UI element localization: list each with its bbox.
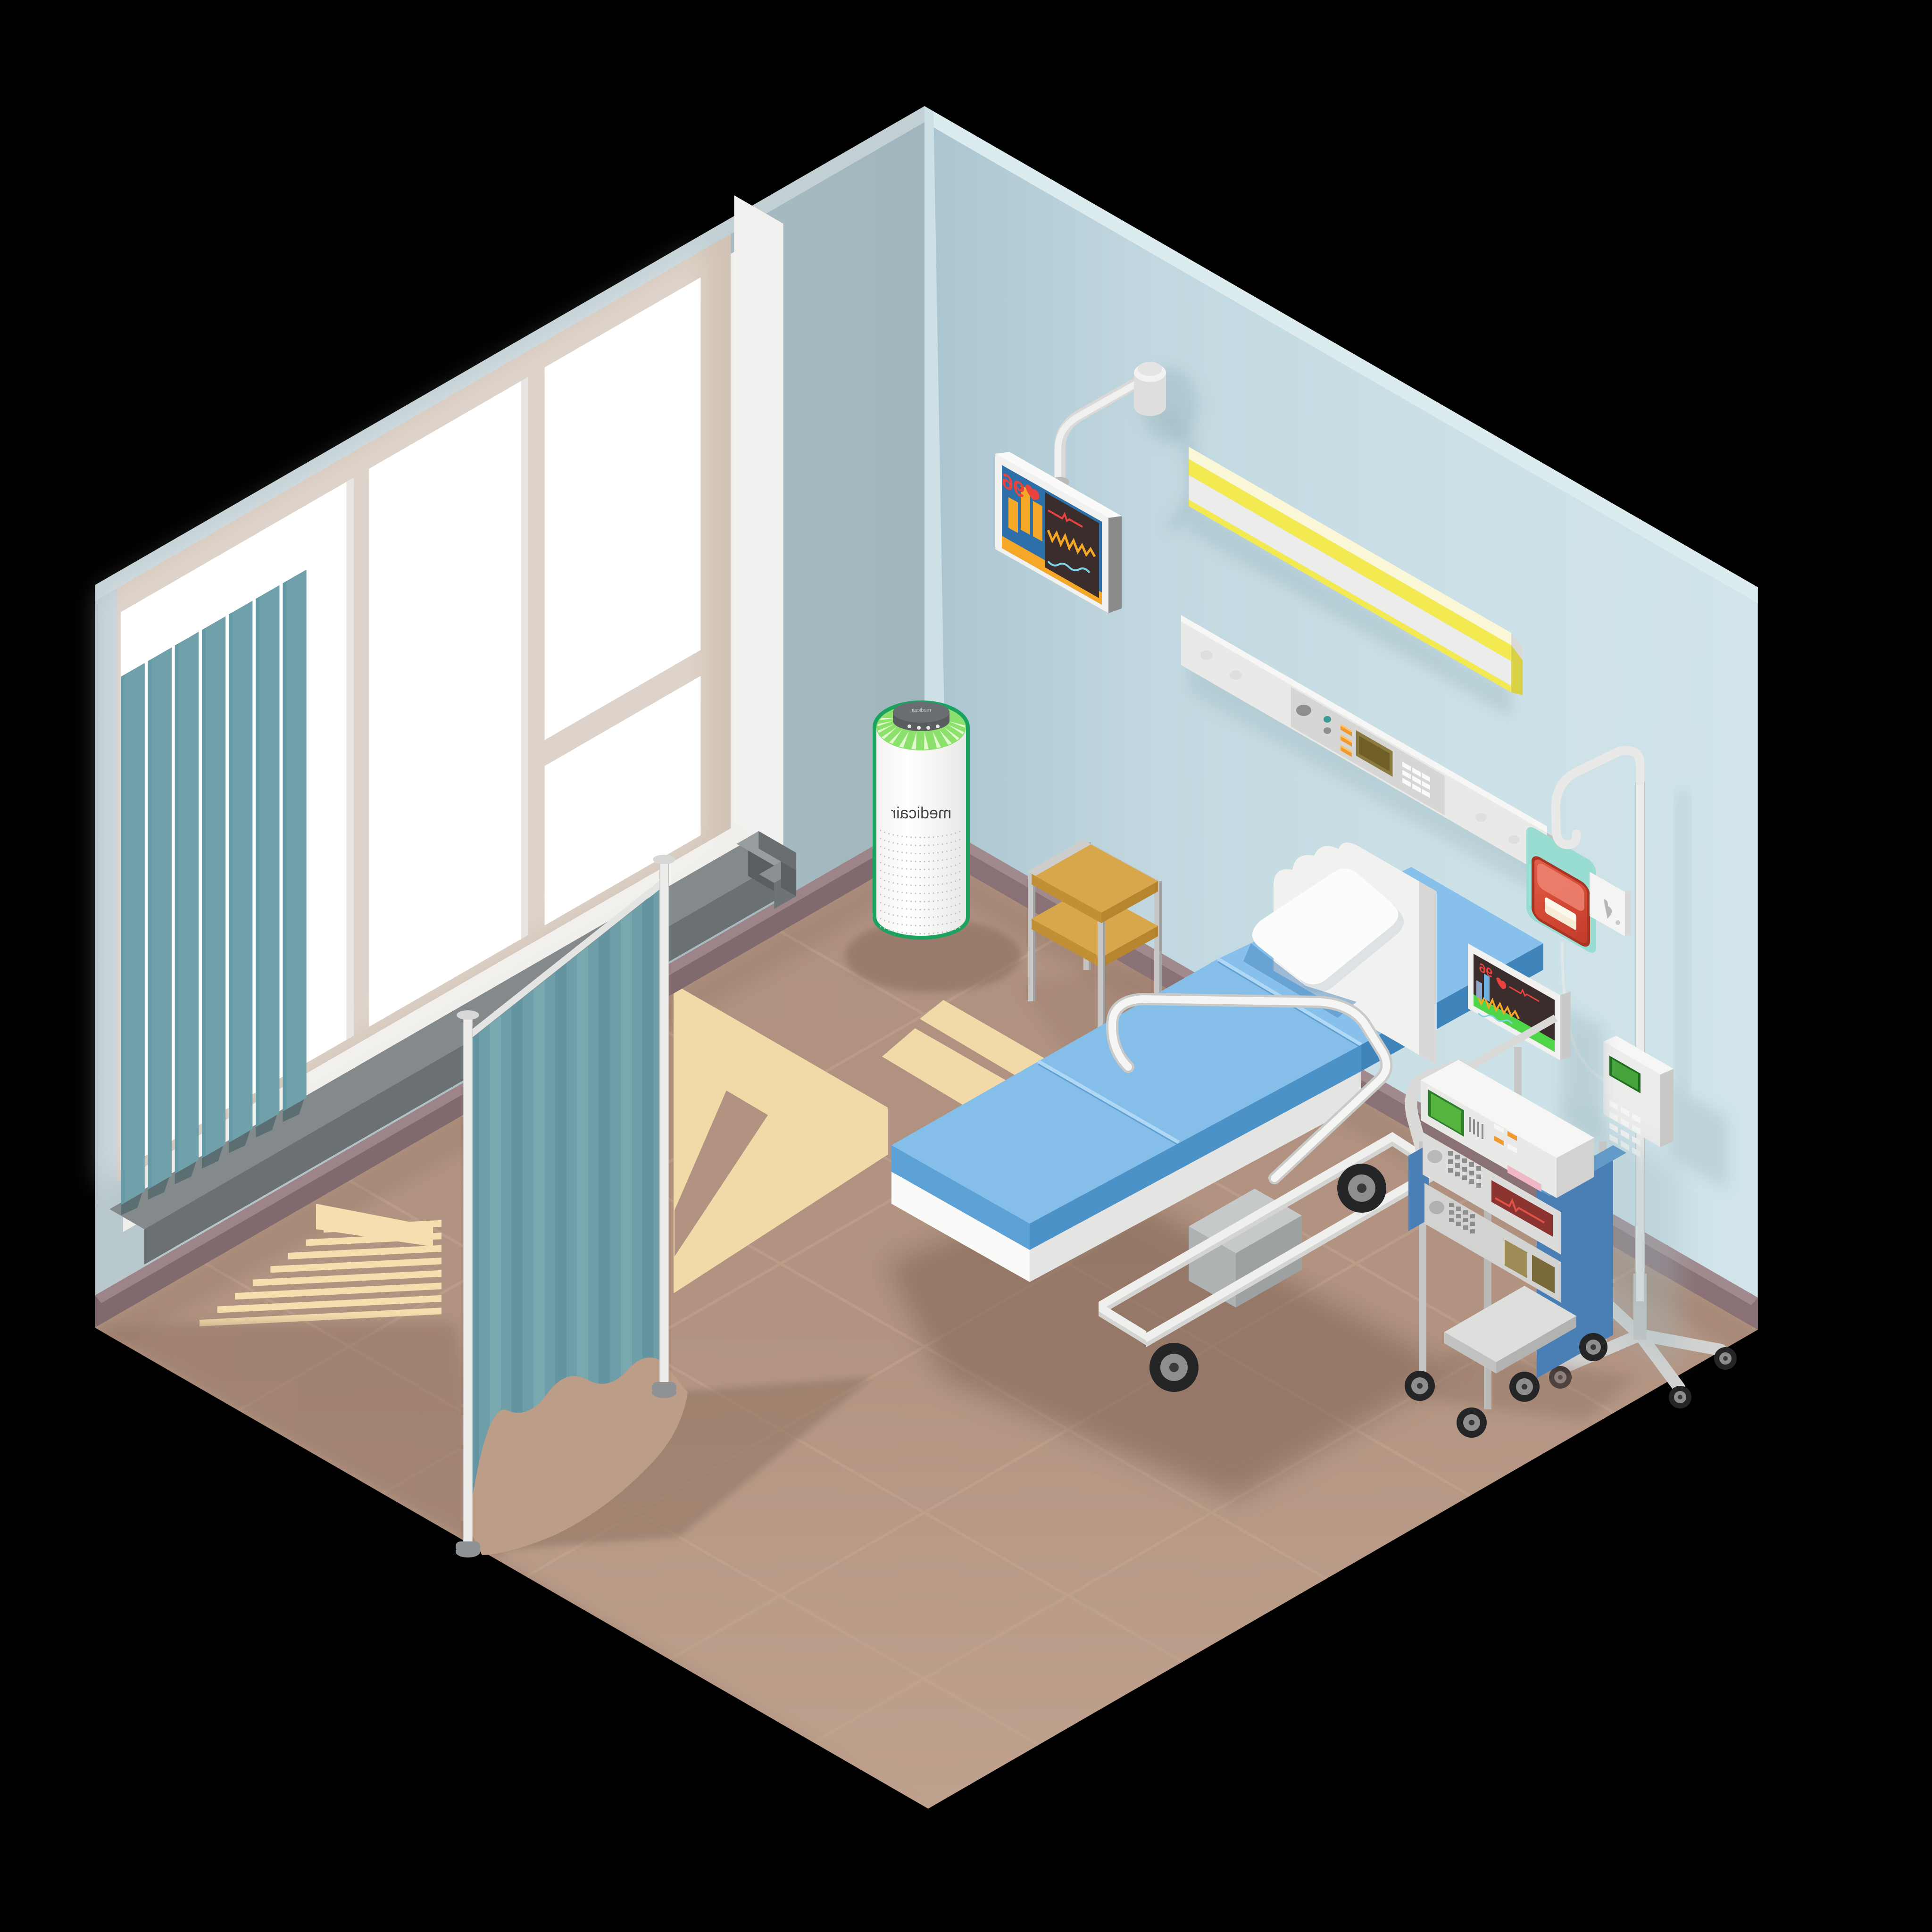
svg-text:medicair: medicair [891,804,951,822]
svg-text:medicair: medicair [911,708,931,713]
